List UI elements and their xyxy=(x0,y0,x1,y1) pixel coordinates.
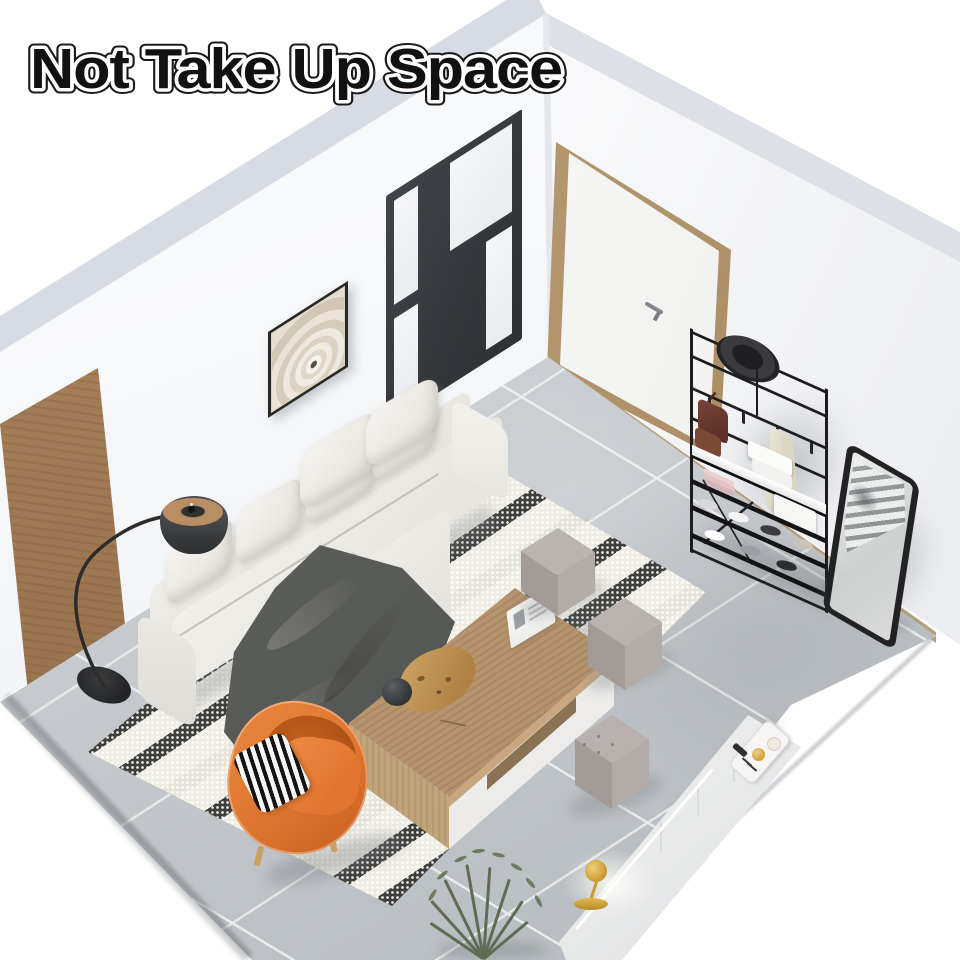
tuft-button xyxy=(611,743,614,746)
plant-leaf xyxy=(492,852,506,859)
shoe xyxy=(759,524,782,537)
plant-leaf xyxy=(454,855,468,864)
coat-hook xyxy=(810,442,813,454)
plant-leaf xyxy=(427,888,437,901)
tuft-button xyxy=(583,743,586,746)
lamp-glow xyxy=(545,835,675,930)
rack-divider xyxy=(756,359,758,416)
partition-pane xyxy=(486,225,512,350)
partition-pane xyxy=(394,186,418,305)
plant-leaf xyxy=(534,894,544,907)
rack-upright xyxy=(690,328,693,553)
floor-lamp-shade xyxy=(160,496,228,554)
tuft-button xyxy=(597,751,600,754)
headline-text: Not Take Up Space xyxy=(30,37,562,101)
product-image: Not Take Up Space Not Take Up Space Not … xyxy=(0,0,960,960)
plate xyxy=(767,737,781,751)
plant-leaf xyxy=(510,862,523,872)
headline-banner: Not Take Up Space Not Take Up Space Not … xyxy=(22,24,622,114)
console-seam xyxy=(697,788,699,816)
coat-hook xyxy=(742,412,745,424)
table-lamp-head xyxy=(585,860,607,882)
shoe xyxy=(775,559,798,572)
plant-leaf xyxy=(436,869,449,880)
mirror-reflection xyxy=(832,454,911,639)
plant-leaf xyxy=(472,848,485,853)
lamp-finial xyxy=(188,506,195,513)
shoe xyxy=(791,537,814,550)
plant-leaf xyxy=(525,877,537,889)
floor-plant xyxy=(420,845,550,960)
gold-cup xyxy=(752,748,765,761)
table-lamp-base xyxy=(574,898,608,910)
tuft-button xyxy=(597,735,600,738)
sphere-vase xyxy=(382,678,412,706)
